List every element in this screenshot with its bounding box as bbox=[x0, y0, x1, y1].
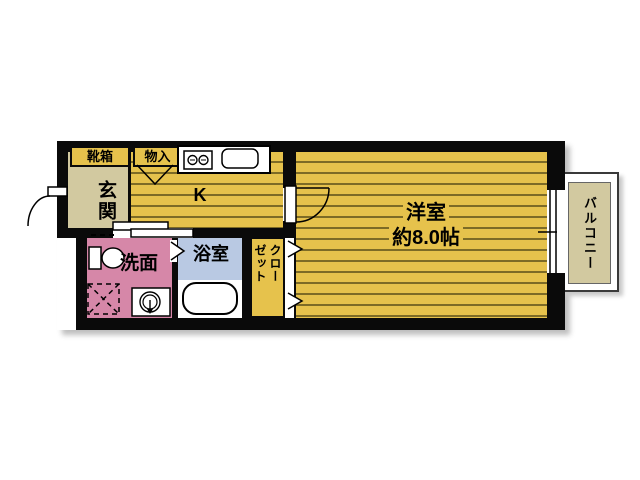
washer-pan-icon bbox=[88, 284, 119, 314]
bathtub-icon bbox=[183, 283, 237, 314]
sliding-door-icon bbox=[113, 222, 193, 237]
storage-door-icon bbox=[137, 165, 173, 184]
closet-label-line1: クロー bbox=[268, 244, 282, 283]
main-room-name: 洋室 bbox=[403, 202, 449, 224]
main-room-label: 洋室 約8.0帖 bbox=[346, 201, 506, 251]
main-room-area: 約8.0帖 bbox=[389, 227, 463, 249]
main-room-door-icon bbox=[285, 186, 329, 223]
washroom-label: 洗面 bbox=[103, 253, 175, 276]
closet-label-line2: ゼット bbox=[253, 244, 267, 283]
stove-icon bbox=[184, 151, 212, 169]
wash-basin-icon bbox=[132, 288, 170, 316]
bathroom-label: 浴室 bbox=[180, 244, 242, 266]
closet-label: クロー ゼット bbox=[252, 244, 282, 283]
entrance-label: 玄関 bbox=[82, 172, 116, 230]
fixtures-layer bbox=[0, 0, 640, 480]
window-icon bbox=[538, 190, 557, 273]
kitchen-label: K bbox=[170, 185, 230, 207]
kitchen-counter bbox=[178, 146, 270, 173]
floor-plan: バルコニー 靴箱 物入 bbox=[0, 0, 640, 480]
entrance-door-icon bbox=[28, 187, 67, 226]
kitchen-sink-icon bbox=[222, 149, 258, 168]
closet-door-icon bbox=[288, 241, 302, 309]
